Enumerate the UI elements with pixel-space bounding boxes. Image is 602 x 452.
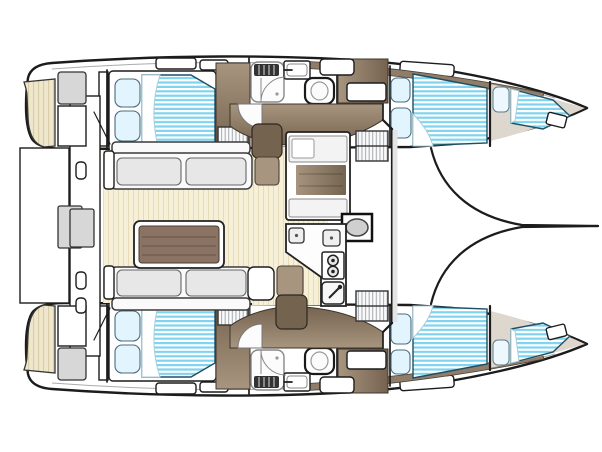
companionway-steps-lower [255,157,279,185]
pillow [115,111,140,141]
catamaran-floorplan [0,0,602,452]
settee-back [112,142,250,154]
sink-drain [295,234,298,237]
settee-cushion [117,158,181,185]
companionway-stairs-starboard [276,295,307,329]
overhead-locker [320,59,354,75]
nacelle-line-starboard [431,226,598,304]
transom-locker [58,348,86,380]
nacelle-line-port [431,148,598,226]
settee-cushion [186,158,246,185]
sliding-door [70,209,94,247]
pillow [493,87,509,112]
dining-table [134,221,224,268]
settee-armrest [104,151,114,189]
transom-step-box [58,106,86,146]
sink-drain [330,236,333,239]
settee-cushion [186,270,246,296]
settee-armrest [104,266,114,299]
companionway-stairs-port [252,124,282,158]
pillow [391,78,410,102]
island-shelf [289,199,347,217]
burner-center [331,270,335,274]
wardrobe-drawer [347,83,386,101]
island-wood-front [295,164,347,196]
galley-island [286,132,350,220]
door-handle [76,298,86,313]
island-detail [292,139,314,158]
galley-main-sink [322,282,344,304]
settee-cushion [117,270,181,296]
nav-seat [248,267,274,300]
sink-oval [346,219,368,236]
burner-center [331,259,335,263]
shower-grate [254,64,279,76]
door-handle [76,162,86,179]
door-handle [76,272,86,289]
windshield-shade [393,130,398,322]
deck-hatch [156,58,196,69]
toilet [305,78,334,104]
table-top [139,226,219,263]
floorplan-canvas [0,0,602,452]
pillow [115,79,140,107]
transom-teak-steps [24,79,55,147]
faucet-base [338,285,342,289]
toilet-bowl [311,82,328,100]
stove [322,252,344,279]
settee-back [112,298,250,310]
companionway-steps-lower [277,266,303,296]
shower-drain [275,92,278,95]
transom-locker [58,72,86,104]
